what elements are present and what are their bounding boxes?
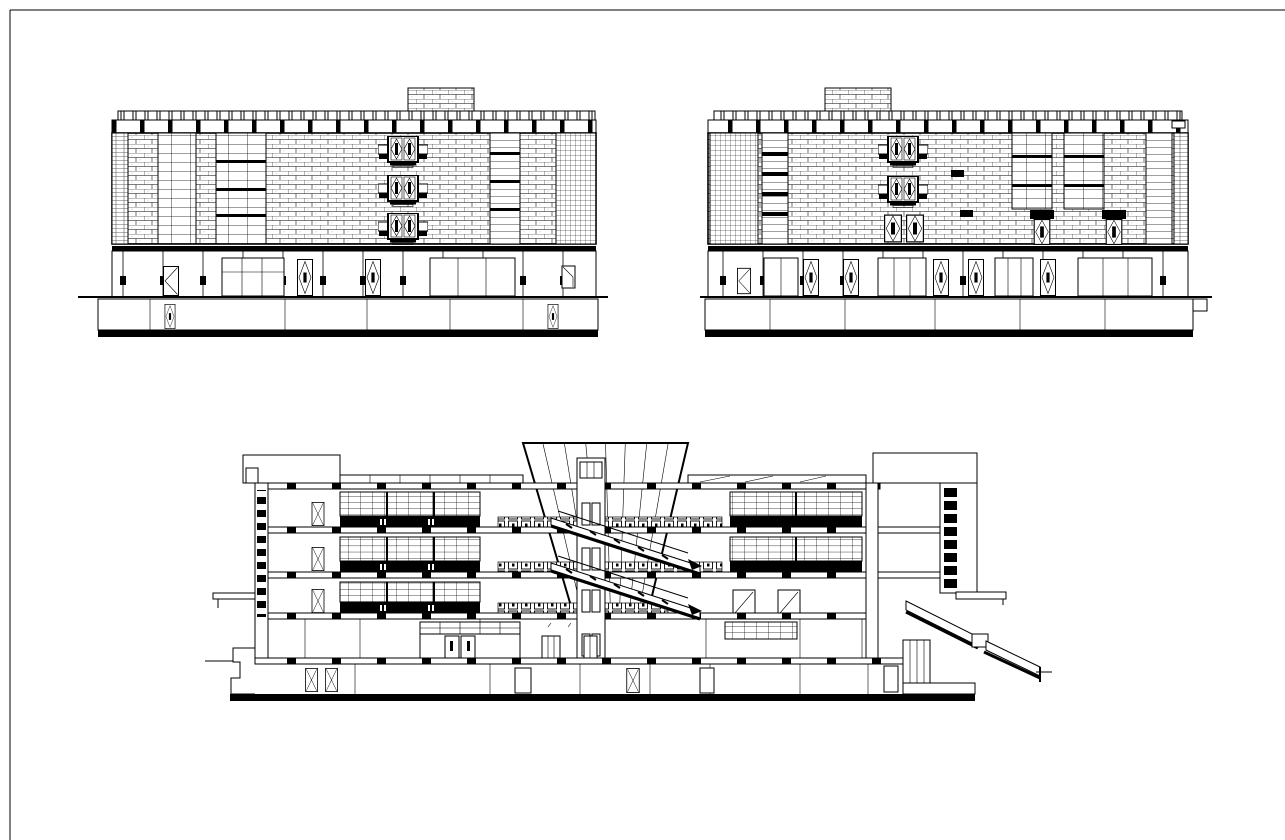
- tower-slab-stub: [878, 572, 940, 578]
- section-view: [205, 443, 1052, 701]
- elevator-shaft: [577, 458, 605, 658]
- basement-door: [515, 668, 531, 693]
- banded-strip: [490, 133, 520, 244]
- wall-vent: [951, 170, 964, 177]
- basement-door: [326, 668, 338, 691]
- floor-door: [312, 589, 324, 612]
- banded-strip: [762, 133, 788, 244]
- cad-canvas: [0, 0, 1285, 840]
- diamond-door: [1041, 260, 1056, 296]
- right-canopy: [956, 592, 1006, 605]
- storefront-lintel: [708, 246, 1188, 251]
- balustrade-row: [498, 517, 722, 527]
- window-strip: [158, 133, 196, 244]
- grid-screen-strip: [710, 133, 758, 244]
- diamond-door: [934, 260, 949, 296]
- coping-band: [112, 120, 596, 133]
- right-exterior-wall: [866, 483, 878, 661]
- basement-door: [306, 668, 318, 691]
- parapet-tick-band: [118, 111, 595, 120]
- storefront-lintel: [112, 246, 596, 251]
- diamond-door: [844, 260, 859, 296]
- parapet-tick-band: [714, 111, 1182, 120]
- grid-screen-strip: [556, 133, 596, 244]
- entry-door: [737, 268, 750, 293]
- elevation-right: [700, 88, 1212, 337]
- ground-floor-slab: [255, 658, 905, 664]
- window-strip: [1012, 133, 1052, 209]
- small-diamond-window: [885, 215, 902, 242]
- small-diamond-window: [1034, 220, 1050, 245]
- base-right-step: [1193, 299, 1207, 311]
- basement-door: [165, 304, 175, 328]
- basement: [230, 664, 975, 701]
- rooftop-penthouse: [825, 88, 891, 111]
- rooftop-penthouse: [408, 88, 474, 111]
- ground-window-band: [725, 622, 797, 639]
- left-canopy: [213, 593, 255, 608]
- roof-slab: [255, 483, 880, 489]
- upper-right-doors: [733, 590, 800, 613]
- window-header: [1102, 210, 1126, 219]
- flag-door: [562, 266, 575, 288]
- exterior-stair: [903, 601, 1052, 694]
- basement-door: [627, 668, 640, 692]
- cad-drawing-sheet: [0, 0, 1285, 840]
- diamond-door: [298, 260, 313, 296]
- elevation-left: [78, 88, 608, 337]
- floor-slab-2: [268, 613, 866, 619]
- coping-band: [708, 120, 1188, 133]
- base-plinth: [98, 299, 598, 337]
- base-plinth: [705, 299, 1207, 337]
- tower-slab-stub: [878, 527, 940, 533]
- diamond-door: [969, 260, 984, 296]
- corner-pilaster: [112, 133, 128, 244]
- corner-pilaster: [1174, 133, 1188, 244]
- small-diamond-window: [907, 215, 924, 242]
- basement-door: [700, 668, 714, 693]
- glazed-partitions-left: [340, 492, 480, 613]
- entry-door: [164, 267, 179, 296]
- left-roof-parapet: [243, 455, 340, 483]
- foundation-slab: [230, 694, 975, 701]
- left-wall-cut-blocks: [257, 490, 266, 617]
- entrance-glazing: [420, 622, 520, 658]
- diamond-door: [366, 260, 381, 296]
- wall-vent: [960, 210, 973, 217]
- window-header: [1030, 210, 1054, 219]
- window-strip: [1064, 133, 1104, 209]
- small-diamond-window: [1106, 220, 1122, 245]
- left-foundation-steps: [231, 648, 255, 694]
- storefront-band: [112, 251, 596, 297]
- floor-door: [312, 547, 324, 570]
- basement-door: [884, 666, 898, 692]
- banded-strip: [1146, 133, 1172, 244]
- diamond-door: [804, 260, 819, 296]
- coping-end-block: [1172, 121, 1185, 128]
- basement-door: [548, 304, 558, 328]
- floor-door: [312, 502, 324, 525]
